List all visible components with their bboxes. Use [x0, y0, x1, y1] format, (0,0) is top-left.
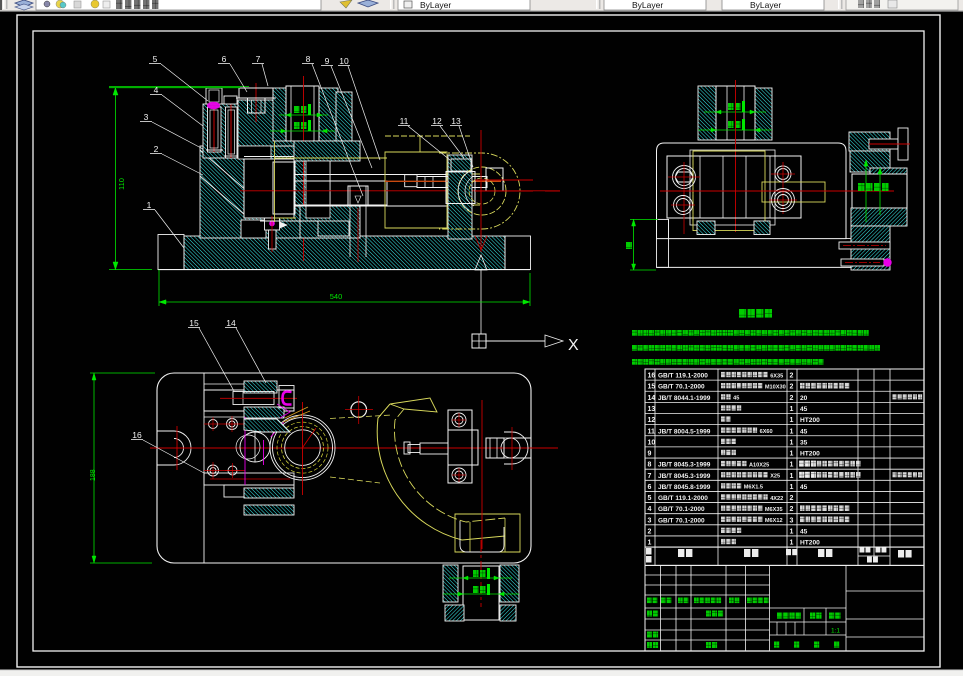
svg-text:9: 9: [325, 56, 330, 66]
svg-text:188: 188: [90, 469, 97, 481]
svg-text:JB/T 8004.5-1999: JB/T 8004.5-1999: [658, 428, 711, 435]
svg-text:HT200: HT200: [800, 540, 820, 547]
svg-text:GB/T 70.1-2000: GB/T 70.1-2000: [658, 384, 705, 391]
svg-text:45: 45: [800, 528, 808, 535]
svg-text:ByLayer: ByLayer: [750, 0, 781, 10]
svg-text:2: 2: [790, 495, 794, 502]
svg-text:GB/T 70.1-2000: GB/T 70.1-2000: [658, 517, 705, 524]
svg-text:3: 3: [790, 517, 794, 524]
svg-text:2: 2: [648, 528, 652, 535]
svg-text:7: 7: [256, 54, 261, 64]
svg-text:JB/T 8044.1-1999: JB/T 8044.1-1999: [658, 395, 711, 402]
svg-text:2: 2: [154, 144, 159, 154]
svg-text:540: 540: [330, 292, 343, 301]
svg-text:1: 1: [790, 462, 794, 469]
svg-text:M6X35: M6X35: [765, 507, 783, 513]
svg-text:1: 1: [790, 484, 794, 491]
svg-text:13: 13: [648, 406, 656, 413]
svg-text:13: 13: [451, 116, 461, 126]
svg-text:X25: X25: [770, 474, 780, 480]
svg-text:15: 15: [189, 318, 199, 328]
svg-text:1: 1: [147, 200, 152, 210]
svg-text:1: 1: [790, 540, 794, 547]
svg-text:1: 1: [790, 473, 794, 480]
svg-text:1: 1: [790, 406, 794, 413]
svg-text:6X35: 6X35: [770, 373, 783, 379]
svg-text:16: 16: [648, 373, 656, 380]
svg-text:11: 11: [400, 116, 409, 126]
svg-text:JB/T 8045.3-1999: JB/T 8045.3-1999: [658, 473, 711, 480]
svg-text:2: 2: [790, 373, 794, 380]
svg-text:8: 8: [306, 54, 311, 64]
svg-text:1:1: 1:1: [831, 628, 840, 635]
svg-text:45: 45: [800, 406, 808, 413]
svg-text:JB/T 8045.3-1999: JB/T 8045.3-1999: [658, 462, 711, 469]
svg-text:45: 45: [800, 428, 808, 435]
svg-text:M6X1.5: M6X1.5: [744, 485, 763, 491]
svg-text:5: 5: [648, 495, 652, 502]
svg-text:12: 12: [432, 116, 442, 126]
svg-text:3: 3: [648, 517, 652, 524]
svg-text:A10X25: A10X25: [749, 462, 769, 468]
svg-text:1: 1: [648, 540, 652, 547]
svg-text:5: 5: [153, 54, 158, 64]
svg-text:10: 10: [648, 439, 656, 446]
svg-text:9: 9: [648, 451, 652, 458]
svg-text:6X60: 6X60: [760, 429, 773, 435]
svg-text:1: 1: [790, 451, 794, 458]
svg-text:35: 35: [800, 439, 808, 446]
svg-text:14: 14: [226, 318, 236, 328]
svg-text:1: 1: [790, 428, 794, 435]
svg-text:6: 6: [222, 54, 227, 64]
svg-text:4X22: 4X22: [770, 496, 783, 502]
svg-text:10: 10: [339, 56, 349, 66]
svg-text:12: 12: [648, 417, 656, 424]
svg-text:HT200: HT200: [800, 417, 820, 424]
svg-text:GB/T 70.1-2000: GB/T 70.1-2000: [658, 506, 705, 513]
svg-text:14: 14: [648, 395, 656, 402]
svg-text:20: 20: [800, 395, 808, 402]
svg-text:M6X12: M6X12: [765, 518, 783, 524]
svg-text:ByLayer: ByLayer: [632, 0, 663, 10]
svg-text:2: 2: [790, 395, 794, 402]
svg-text:1: 1: [790, 439, 794, 446]
svg-text:4: 4: [154, 85, 159, 95]
svg-text:ByLayer: ByLayer: [420, 0, 451, 10]
svg-text:X: X: [568, 337, 579, 354]
svg-text:GB/T 119.1-2000: GB/T 119.1-2000: [658, 495, 708, 502]
svg-text:11: 11: [648, 428, 656, 435]
svg-text:1: 1: [790, 528, 794, 535]
svg-text:HT200: HT200: [800, 451, 820, 458]
svg-text:2: 2: [790, 506, 794, 513]
svg-text:6: 6: [648, 484, 652, 491]
svg-text:15: 15: [648, 384, 656, 391]
svg-text:3: 3: [144, 112, 149, 122]
svg-text:45: 45: [800, 484, 808, 491]
svg-text:4: 4: [648, 506, 652, 513]
svg-text:GB/T 119.1-2000: GB/T 119.1-2000: [658, 373, 708, 380]
svg-text:M10X30: M10X30: [765, 385, 786, 391]
svg-text:2: 2: [790, 384, 794, 391]
svg-text:110: 110: [117, 178, 126, 190]
svg-text:8: 8: [648, 462, 652, 469]
svg-text:7: 7: [648, 473, 652, 480]
svg-text:45: 45: [733, 396, 739, 402]
svg-text:1: 1: [790, 417, 794, 424]
svg-text:16: 16: [132, 430, 142, 440]
svg-text:JB/T 8045.8-1999: JB/T 8045.8-1999: [658, 484, 711, 491]
